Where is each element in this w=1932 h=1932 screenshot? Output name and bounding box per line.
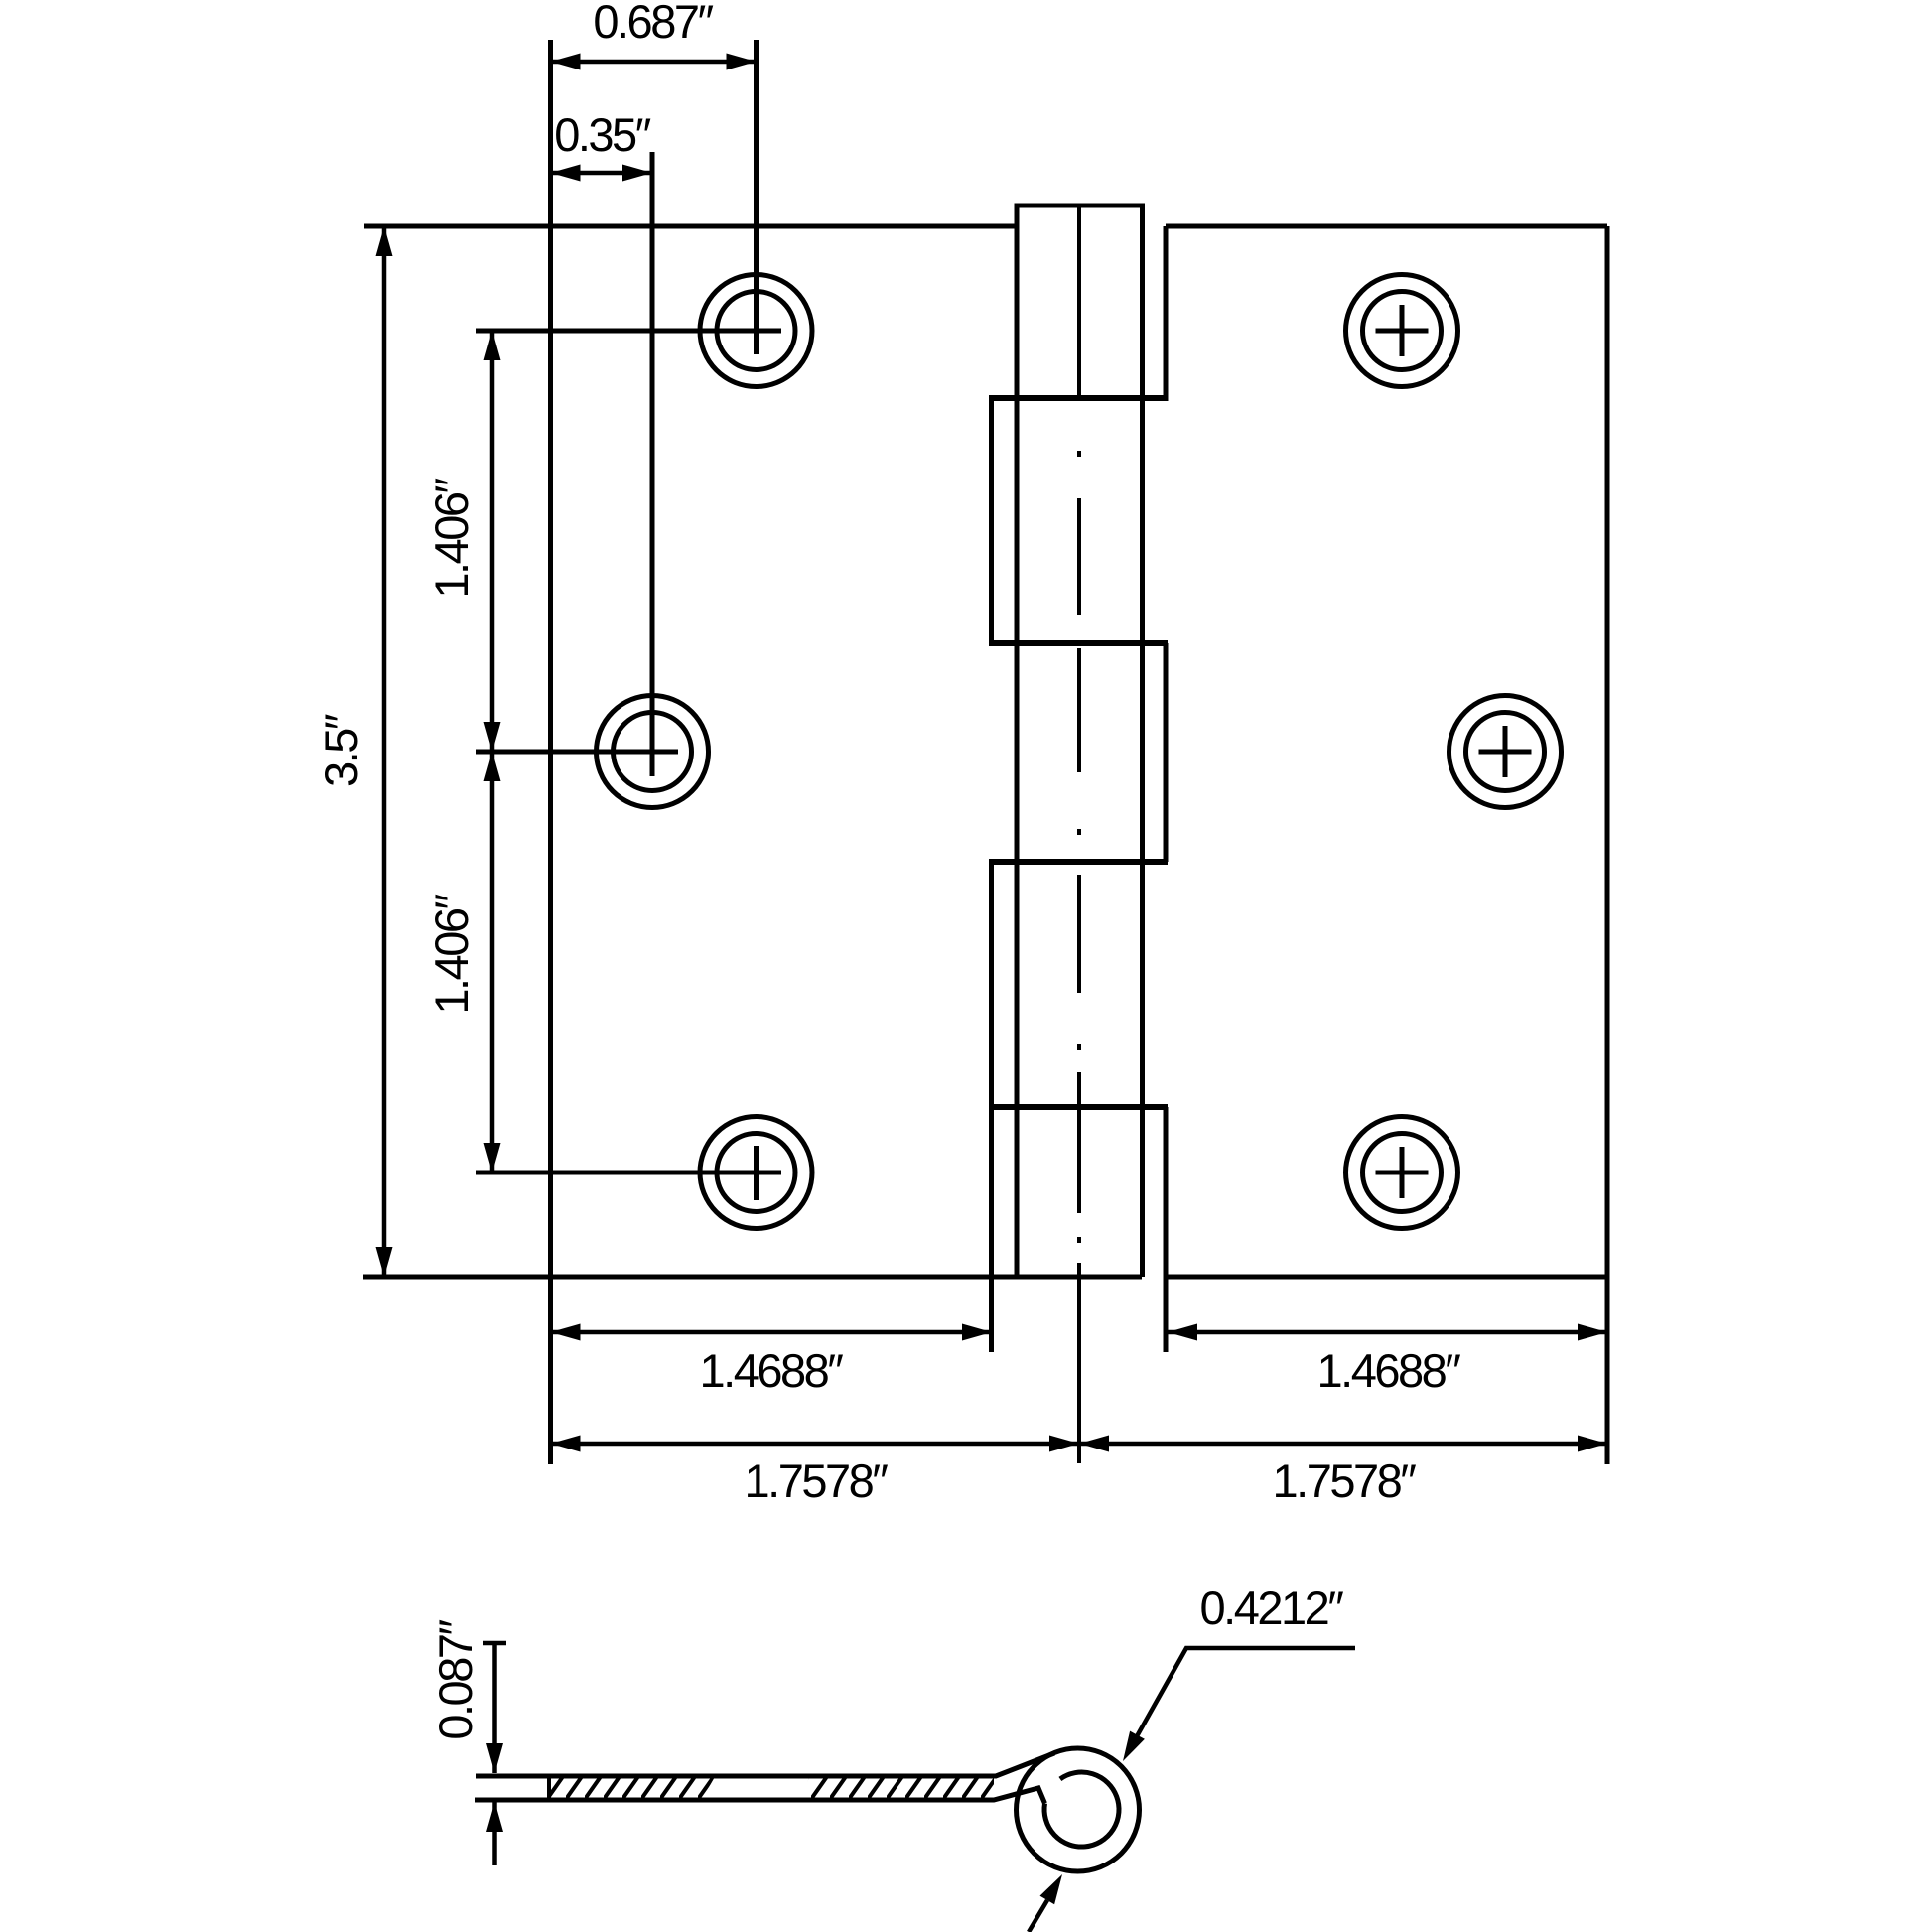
svg-text:1.7578″: 1.7578″ [1273,1454,1417,1507]
svg-text:1.7578″: 1.7578″ [745,1454,889,1507]
svg-text:3.5″: 3.5″ [315,714,367,787]
svg-text:0.35″: 0.35″ [554,108,650,161]
svg-text:0.4212″: 0.4212″ [1200,1582,1344,1634]
svg-text:0.087″: 0.087″ [429,1620,482,1740]
svg-text:1.406″: 1.406″ [425,479,478,599]
svg-text:0.687″: 0.687″ [593,0,713,48]
svg-text:1.4688″: 1.4688″ [700,1344,844,1397]
svg-text:1.406″: 1.406″ [425,895,478,1015]
svg-text:1.4688″: 1.4688″ [1317,1344,1461,1397]
